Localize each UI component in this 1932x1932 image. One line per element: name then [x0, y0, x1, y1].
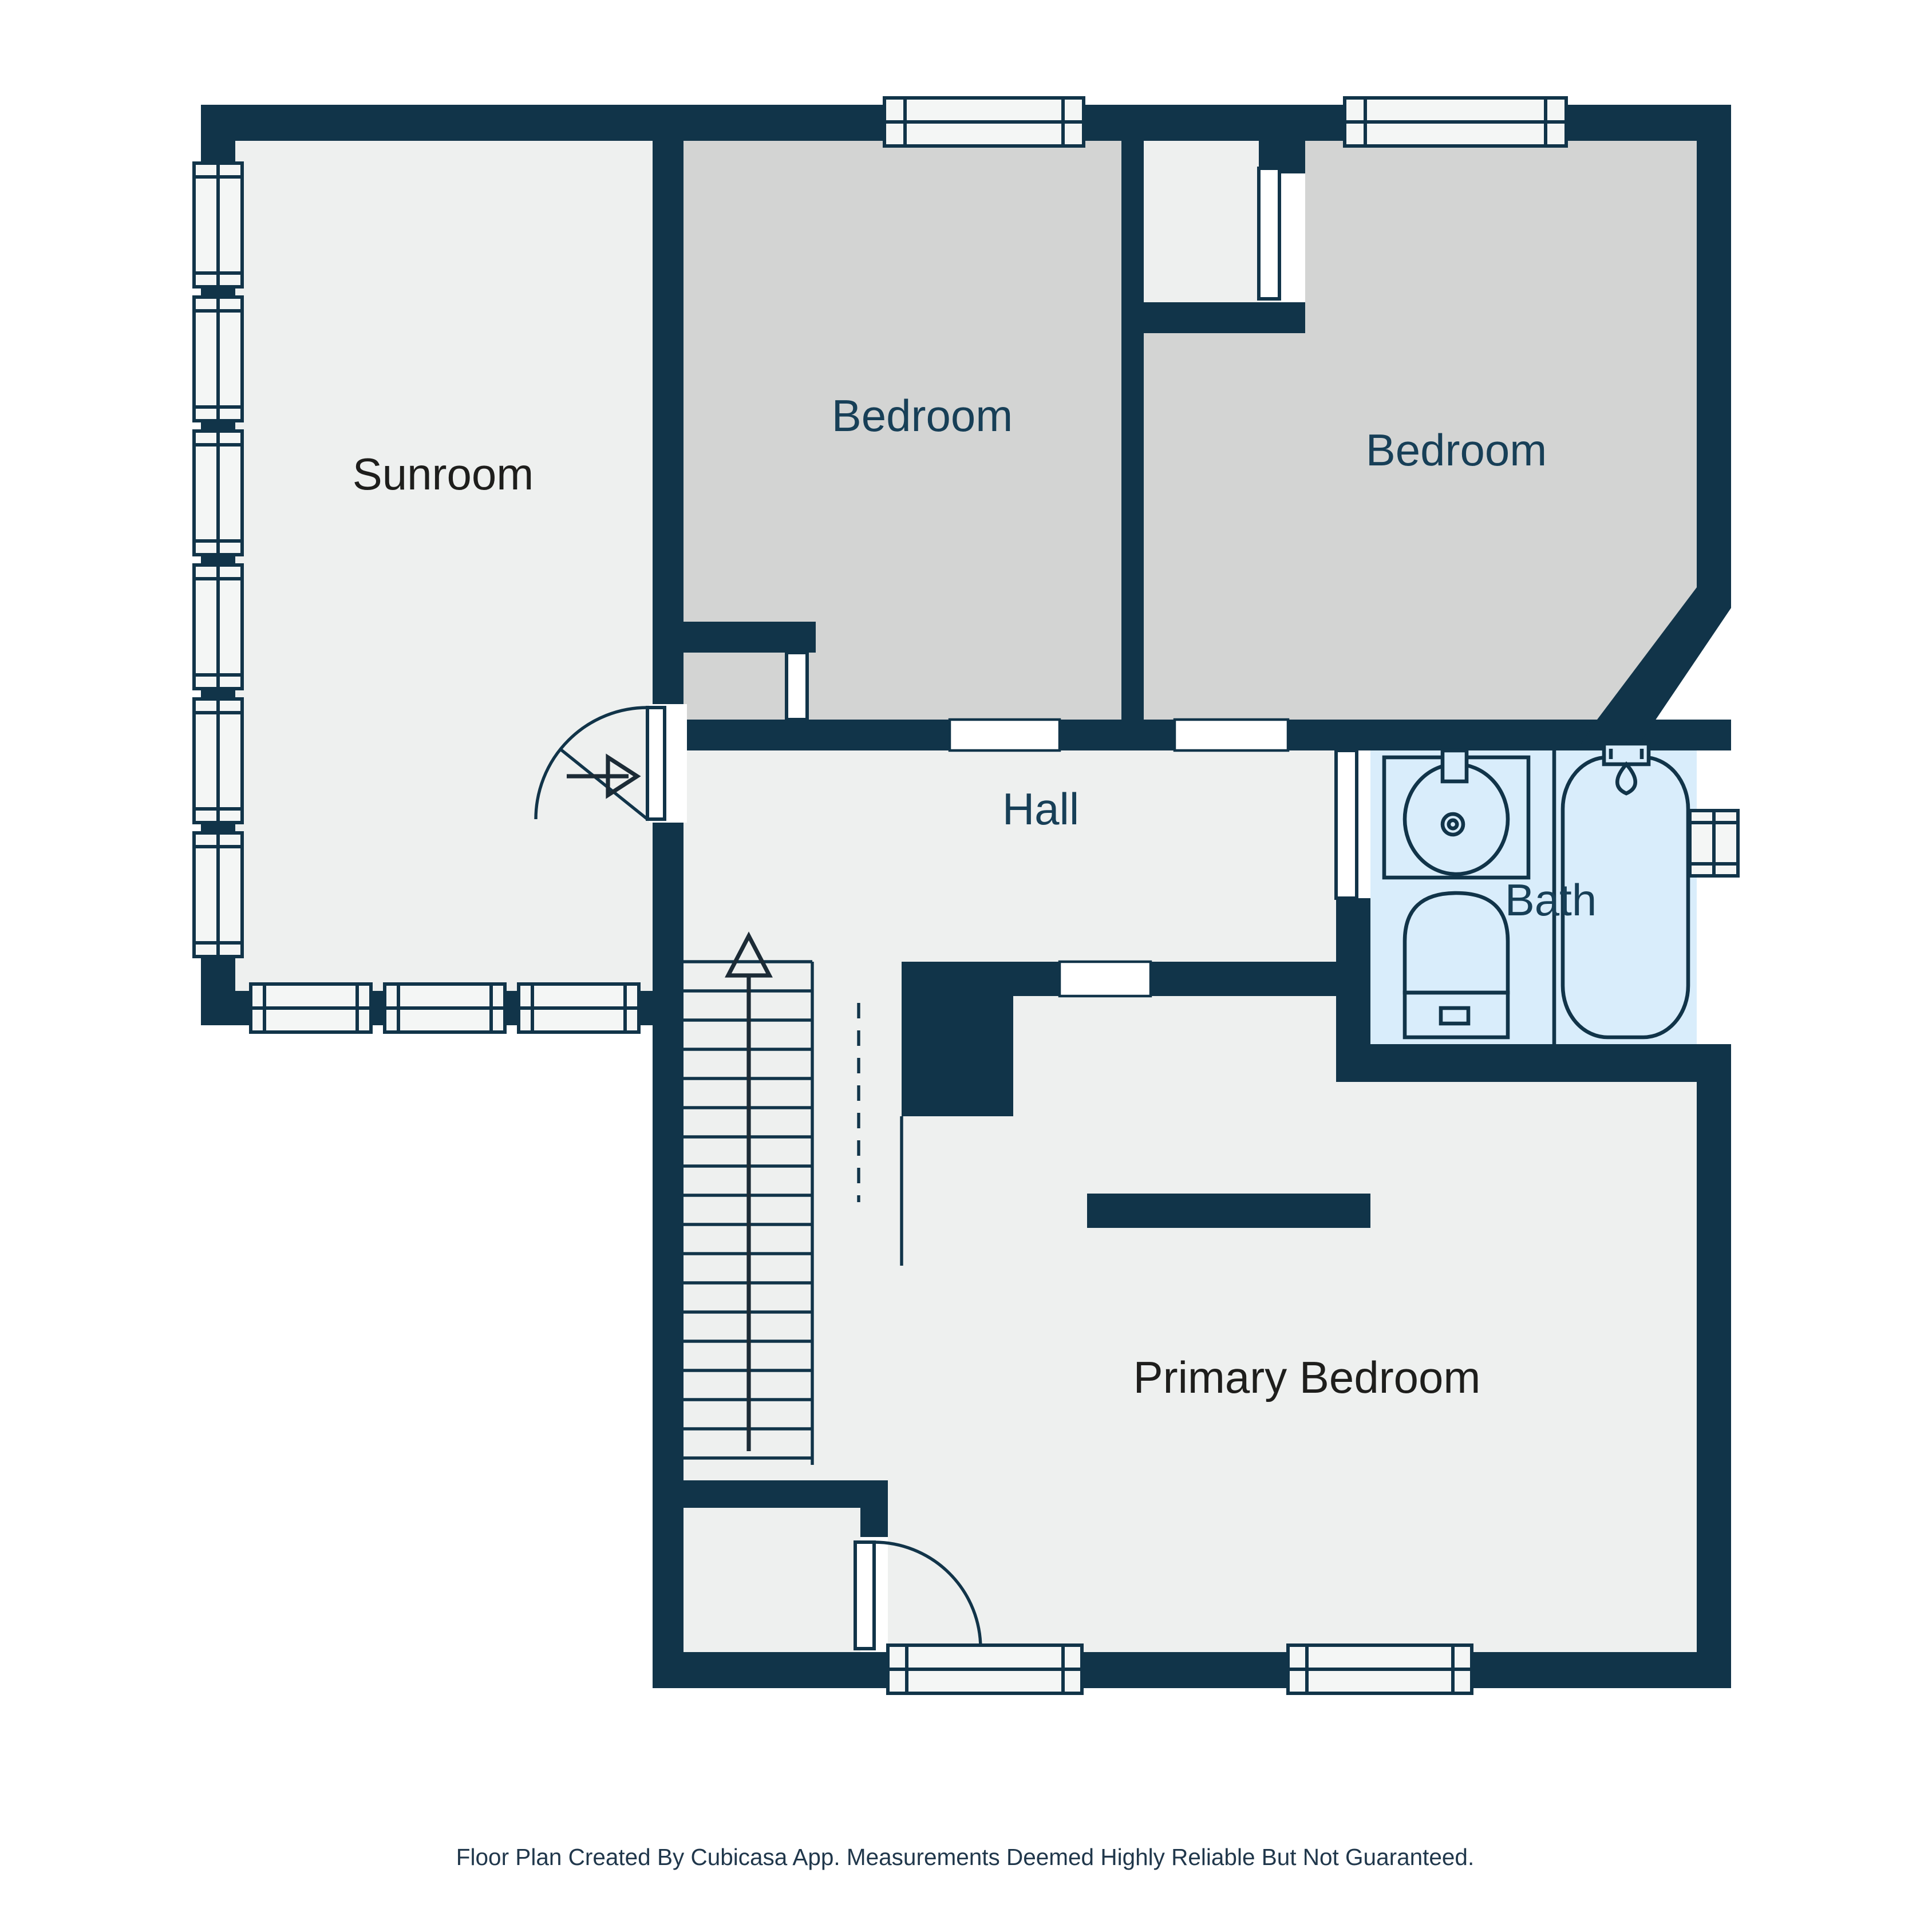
doorway-bedroom-top [950, 720, 1060, 750]
wall-sunroom-right-lower [653, 823, 683, 1025]
window-bedroom-right [1345, 98, 1566, 146]
floor-plan-page: Sunroom Bedroom Bedroom Hall Bath Primar… [0, 0, 1932, 1932]
wall-right-lower [1697, 1082, 1731, 1688]
wall-hall-bottom-left [902, 962, 1060, 996]
bath-label: Bath [1505, 875, 1597, 925]
sunroom-floor [235, 141, 653, 991]
sunroom-label: Sunroom [353, 449, 534, 499]
window [251, 984, 371, 1032]
wall-bottom [683, 1652, 1731, 1688]
primary-bedroom-label: Primary Bedroom [1133, 1352, 1481, 1402]
alcove-closet-slider-door [1259, 168, 1279, 299]
window-bath-right [1690, 811, 1738, 876]
doorway-bedroom-right [1175, 720, 1288, 750]
window [194, 699, 242, 823]
hall-label: Hall [1002, 784, 1079, 834]
window [519, 984, 639, 1032]
window [888, 1645, 1082, 1693]
hall-floor [683, 750, 1370, 962]
window [1288, 1645, 1472, 1693]
wall-understair-divider [683, 1480, 888, 1508]
wall-hall-bottom-right [1151, 962, 1370, 996]
wall-bedroom-closet-stub [665, 622, 816, 653]
bedroom-closet-slider-door [787, 653, 807, 720]
wall-bedroom-divider [1121, 141, 1144, 720]
bedroom-top-label: Bedroom [832, 390, 1013, 441]
window [194, 833, 242, 957]
door-leaf [855, 1542, 874, 1649]
window [385, 984, 505, 1032]
wall-sunroom-right-upper [653, 141, 683, 704]
bedroom-right-label: Bedroom [1366, 425, 1547, 475]
wall-primary-stub [1087, 1194, 1370, 1228]
window [194, 565, 242, 689]
wall-hall-top-left [683, 720, 950, 750]
bath-door-leaf [1336, 750, 1357, 898]
window [194, 431, 242, 555]
door-leaf [647, 708, 665, 819]
window [194, 297, 242, 421]
wall-closet-right-stub [860, 1508, 888, 1537]
wall-right-upper [1697, 105, 1731, 587]
window-bedroom-top [884, 98, 1084, 146]
windows-sunroom-bottom [251, 984, 639, 1032]
floor-plan-canvas: Sunroom Bedroom Bedroom Hall Bath Primar… [0, 0, 1932, 1932]
doorway-primary-bedroom [1060, 962, 1151, 996]
wall-bath-top [1288, 720, 1731, 750]
window [194, 163, 242, 287]
wall-stairwell-block [902, 996, 1013, 1116]
wall-left-lower [653, 1025, 683, 1688]
wall-alcove-bottom [1121, 302, 1305, 333]
wall-hall-top-mid [1060, 720, 1175, 750]
wall-bath-bottom [1336, 1044, 1731, 1082]
footer-disclaimer: Floor Plan Created By Cubicasa App. Meas… [456, 1844, 1474, 1870]
